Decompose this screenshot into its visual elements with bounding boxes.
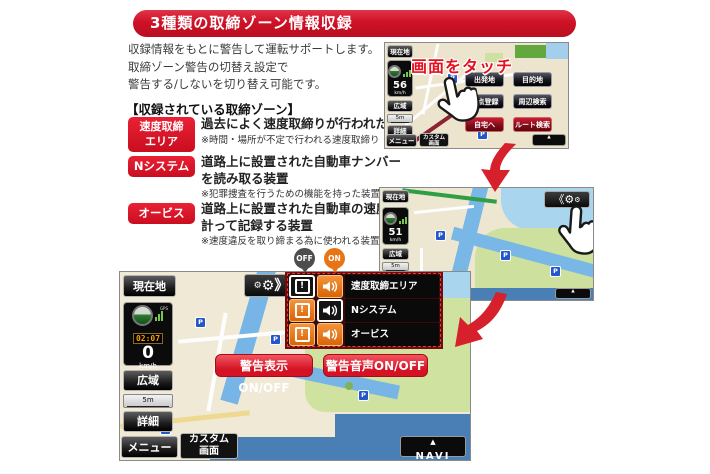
alert-icon: ! — [295, 303, 310, 318]
parking-icon: P — [550, 266, 561, 277]
sound-warning-toggle[interactable] — [317, 299, 343, 322]
speed-unit: km/h — [388, 91, 412, 96]
speed-value: 51 — [383, 228, 408, 238]
intro-line-2: 取締ゾーン警告の切替え設定で — [128, 59, 379, 77]
toggle-row-label: 速度取締エリア — [345, 275, 439, 298]
speaker-icon — [322, 304, 338, 317]
alert-icon: ! — [295, 279, 310, 294]
navi-button[interactable]: ▲ NAVI — [400, 436, 466, 457]
title-banner: 3種類の取締ゾーン情報収録 — [133, 10, 576, 37]
menu-item-destination[interactable]: 目的地 — [513, 72, 552, 87]
zoom-in-button[interactable]: 詳細 — [123, 411, 173, 432]
map-scale: 5m — [382, 262, 409, 271]
zone-desc-line: 計って記録する装置 — [201, 218, 401, 235]
menu-button[interactable]: メニュー — [121, 436, 178, 458]
zone-desc-speed-area: 過去によく速度取締りが行われた場所 ※時間・場所が不定で行われる速度取締り — [201, 116, 413, 149]
map-tree-icon — [345, 382, 353, 390]
navi-button[interactable]: ▲ NAVI — [532, 134, 566, 146]
intro-text: 収録情報をもとに警告して運転サポートします。 取締ゾーン警告の切替え設定で 警告… — [128, 41, 379, 94]
speed-unit: km/h — [383, 238, 408, 243]
zone-note: ※時間・場所が不定で行われる速度取締り — [201, 133, 413, 150]
off-badge: OFF — [294, 248, 315, 269]
page: 3種類の取締ゾーン情報収録 収録情報をもとに警告して運転サポートします。 取締ゾ… — [0, 0, 710, 474]
gps-dial-icon — [132, 305, 153, 326]
warning-sound-onoff-button[interactable]: 警告音声ON/OFF — [323, 354, 428, 377]
map-park — [515, 45, 549, 58]
map-water — [546, 43, 568, 59]
gps-speed-panel: GPS 02:07 0 km/h — [123, 302, 173, 366]
gps-dial-icon — [384, 212, 397, 225]
gps-dial-icon — [388, 65, 401, 78]
gear-icon: ⚙ — [262, 278, 275, 294]
map-scale: 5m — [123, 394, 173, 408]
zone-label-orbis: オービス — [128, 203, 195, 224]
current-location-button[interactable]: 現在地 — [123, 275, 176, 297]
speaker-icon — [322, 280, 338, 293]
display-warning-toggle[interactable]: ! — [289, 299, 315, 322]
parking-icon: P — [270, 334, 281, 345]
zoom-out-button[interactable]: 広域 — [387, 100, 413, 112]
navi-label: NAVI — [416, 451, 451, 460]
map-scale: 5m — [387, 114, 413, 123]
zone-desc-line: を読み取る装置 — [201, 171, 401, 188]
menu-item-route-search[interactable]: ルート検索 — [513, 117, 552, 132]
zone-label-speed-area: 速度取締 エリア — [128, 117, 195, 152]
speed-unit: km/h — [124, 362, 172, 370]
display-warning-toggle[interactable]: ! — [289, 323, 315, 346]
nav-screen-touch-menu: P P 現在地 56 km/h 広域 5m 詳細 メニュー カスタム 画面 出発… — [385, 43, 568, 148]
zone-label-line: 速度取締 — [128, 119, 195, 134]
navi-arrow-icon: ▲ — [556, 290, 590, 295]
navi-arrow-icon: ▲ — [533, 136, 565, 141]
toggle-row-label: オービス — [345, 323, 439, 346]
hand-cursor-icon — [549, 202, 593, 263]
zone-desc-n-system: 道路上に設置された自動車ナンバー を読み取る装置 ※犯罪捜査を行うための機能を持… — [201, 154, 401, 204]
gps-speed-panel: 56 km/h — [387, 60, 413, 97]
toggle-row-orbis: ! オービス — [289, 323, 439, 346]
zoom-out-button[interactable]: 広域 — [382, 248, 409, 260]
gps-label: GPS — [160, 306, 168, 311]
toggle-row-label: Nシステム — [345, 299, 439, 322]
zone-label-n-system: Nシステム — [128, 156, 195, 177]
custom-screen-button[interactable]: カスタム 画面 — [419, 133, 449, 147]
zoom-out-button[interactable]: 広域 — [123, 370, 173, 391]
sound-warning-toggle[interactable] — [317, 323, 343, 346]
gps-signal-icon — [399, 209, 408, 228]
parking-icon: P — [195, 317, 206, 328]
off-badge-label: OFF — [296, 254, 313, 263]
zone-desc-line: 道路上に設置された自動車ナンバー — [201, 154, 401, 171]
parking-icon: P — [358, 390, 369, 401]
warning-toggle-popup: ! 速度取締エリア ! Nシステム — [287, 273, 441, 347]
menu-button[interactable]: メニュー — [386, 134, 417, 147]
alert-icon: ! — [295, 327, 310, 342]
red-arrow-curved-icon — [443, 290, 513, 354]
zone-desc-orbis: 道路上に設置された自動車の速度を 計って記録する装置 ※速度違反を取り締まる為に… — [201, 201, 401, 251]
custom-line: 画面 — [181, 446, 237, 458]
gear-small-icon: ⚙ — [574, 196, 580, 204]
parking-icon: P — [435, 230, 446, 241]
gear-small-icon: ⚙ — [254, 281, 262, 291]
speed-value: 56 — [388, 81, 412, 91]
toggle-row-speed-area: ! 速度取締エリア — [289, 275, 439, 298]
intro-line-1: 収録情報をもとに警告して運転サポートします。 — [128, 41, 379, 59]
on-badge-label: ON — [328, 254, 341, 263]
parking-icon: P — [500, 250, 511, 261]
toggle-row-n-system: ! Nシステム — [289, 299, 439, 322]
custom-line: カスタム — [181, 434, 237, 446]
menu-item-nearby-search[interactable]: 周辺検索 — [513, 94, 552, 109]
warning-display-onoff-button[interactable]: 警告表示ON/OFF — [215, 354, 313, 377]
nav-screen-toggle-settings: P P P P 現在地 GPS 02:07 0 km/h 広域 5m 詳細 メニ… — [120, 272, 470, 460]
red-arrow-down-icon — [472, 143, 524, 195]
gps-speed-panel: 51 km/h — [382, 207, 409, 245]
custom-screen-button[interactable]: カスタム 画面 — [180, 433, 238, 459]
speaker-icon — [322, 328, 338, 341]
intro-line-3: 警告する/しないを切り替え可能です。 — [128, 76, 379, 94]
navi-arrow-icon: ▲ — [401, 439, 465, 446]
display-warning-toggle[interactable]: ! — [289, 275, 315, 298]
speed-value: 0 — [124, 345, 172, 362]
on-badge: ON — [324, 248, 345, 269]
sound-warning-toggle[interactable] — [317, 275, 343, 298]
zone-desc-line: 道路上に設置された自動車の速度を — [201, 201, 401, 218]
custom-line: 画面 — [420, 141, 448, 147]
current-location-button[interactable]: 現在地 — [382, 190, 409, 203]
zone-label-line: エリア — [128, 134, 195, 149]
navi-button[interactable]: ▲ NAVI — [555, 288, 591, 299]
current-location-button[interactable]: 現在地 — [387, 45, 413, 58]
zone-desc-line: 過去によく速度取締りが行われた場所 — [201, 116, 413, 133]
